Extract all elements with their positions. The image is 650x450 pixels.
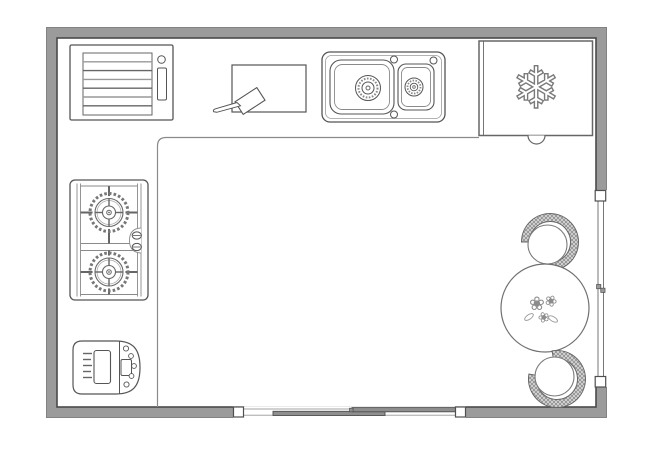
button [123,346,128,351]
faucet-hole [391,56,398,63]
floor-plan-canvas: ❄ [0,0,650,450]
button [132,364,137,369]
window[interactable] [595,190,608,387]
window-mullion [597,285,601,289]
door-handle-nub [350,408,354,412]
sliding-door[interactable] [233,406,466,419]
dining-table[interactable]: ❀ ❀ ❀ [501,264,589,352]
gas-cooktop[interactable] [70,180,148,300]
bread-maker-display [121,360,132,376]
window-mullion [601,288,605,292]
bread-maker[interactable] [73,341,140,394]
button [129,354,134,359]
floor-plan-drawing: ❄ [0,0,650,450]
button [124,382,129,387]
drain-left [356,76,381,101]
drain-right [405,78,423,96]
chair-seat [528,225,567,264]
button [129,374,134,379]
double-sink[interactable] [322,52,445,122]
dishwasher-knob [158,56,166,64]
door-panel-right [352,408,462,412]
snowflake-icon: ❄ [512,54,561,122]
door-end-marker [456,407,466,417]
window-end-marker [595,191,606,202]
faucet-hole [391,111,398,118]
faucet-hole [430,57,437,64]
refrigerator[interactable]: ❄ [479,41,593,144]
door-end-marker [234,407,244,417]
bread-maker-door [94,351,111,384]
dishwasher[interactable] [70,45,173,120]
window-end-marker [595,377,606,388]
dishwasher-handle [158,68,167,100]
chair-seat [535,357,574,396]
